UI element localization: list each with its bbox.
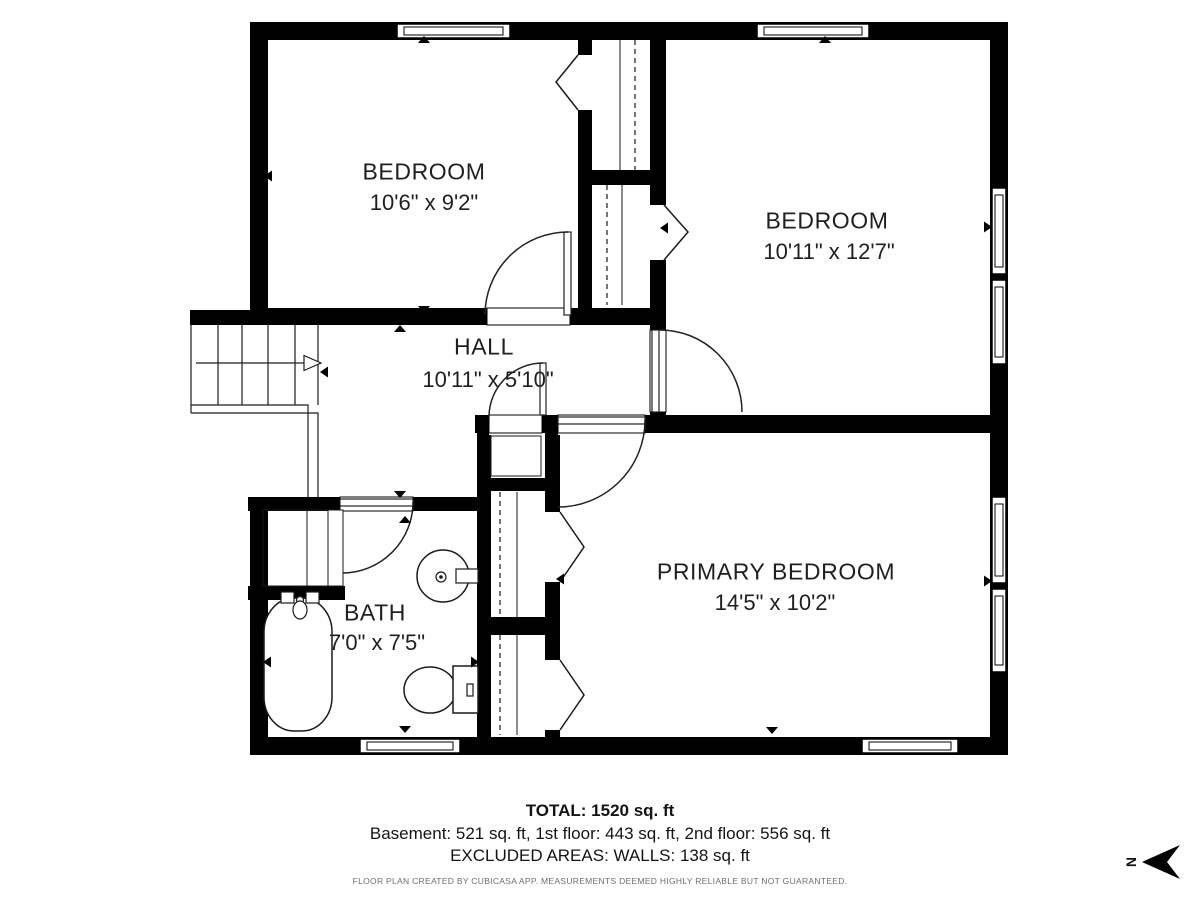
window bbox=[992, 497, 1006, 583]
window bbox=[992, 589, 1006, 672]
total-area-text: TOTAL: 1520 sq. ft bbox=[0, 800, 1200, 821]
stairs bbox=[191, 325, 321, 497]
linen-closet bbox=[491, 436, 541, 476]
floor-plan-drawing: N bbox=[0, 0, 1200, 900]
floor-areas-text: Basement: 521 sq. ft, 1st floor: 443 sq.… bbox=[0, 824, 1200, 843]
bath-closet bbox=[263, 510, 343, 586]
room-label-bedroom-1: BEDROOM bbox=[362, 159, 485, 186]
bathtub bbox=[264, 592, 332, 731]
room-dimensions-bedroom-1: 10'6" x 9'2" bbox=[370, 190, 478, 216]
area-summary: TOTAL: 1520 sq. ft Basement: 521 sq. ft,… bbox=[0, 800, 1200, 886]
excluded-areas-text: EXCLUDED AREAS: WALLS: 138 sq. ft bbox=[0, 846, 1200, 865]
room-label-bath: BATH bbox=[344, 600, 406, 627]
room-dimensions-hall: 10'11" x 5'10" bbox=[422, 367, 553, 393]
room-label-bedroom-2: BEDROOM bbox=[765, 208, 888, 235]
sink bbox=[417, 550, 478, 602]
window bbox=[360, 739, 460, 753]
window bbox=[992, 188, 1006, 274]
disclaimer-text: FLOOR PLAN CREATED BY CUBICASA APP. MEAS… bbox=[0, 876, 1200, 886]
stairs-direction-arrow bbox=[196, 356, 321, 371]
room-dimensions-primary-bedroom: 14'5" x 10'2" bbox=[715, 590, 836, 616]
floor-plan-page: N BEDROOM 10'6" x 9'2" BEDROOM 10'11" x … bbox=[0, 0, 1200, 900]
window bbox=[862, 739, 958, 753]
door-bedroom-1 bbox=[485, 232, 571, 315]
window bbox=[397, 24, 510, 38]
bifold-closet-doors bbox=[556, 55, 688, 730]
room-label-hall: HALL bbox=[454, 334, 514, 361]
toilet bbox=[404, 666, 478, 713]
room-label-primary-bedroom: PRIMARY BEDROOM bbox=[657, 559, 895, 586]
window bbox=[757, 24, 869, 38]
room-dimensions-bath: 7'0" x 7'5" bbox=[329, 630, 425, 656]
window bbox=[992, 280, 1006, 364]
room-dimensions-bedroom-2: 10'11" x 12'7" bbox=[763, 239, 894, 265]
